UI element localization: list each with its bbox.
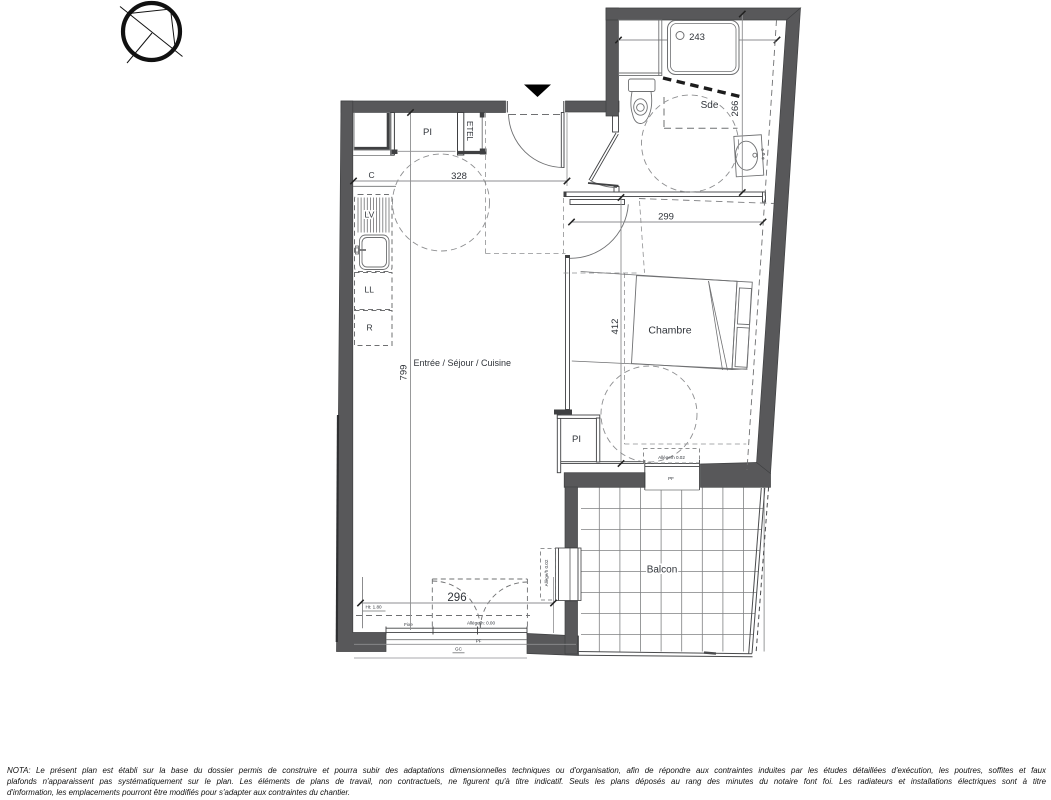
svg-text:C: C (369, 170, 375, 180)
svg-text:ETEL: ETEL (465, 121, 474, 142)
svg-text:328: 328 (451, 171, 467, 182)
svg-text:Entrée / Séjour / Cuisine: Entrée / Séjour / Cuisine (414, 358, 512, 368)
svg-text:Sde: Sde (701, 100, 719, 111)
svg-text:799: 799 (399, 365, 410, 381)
svg-text:PF: PF (668, 476, 674, 481)
svg-text:Ht: 1.80: Ht: 1.80 (366, 605, 383, 610)
svg-text:Chambre: Chambre (648, 325, 691, 337)
svg-text:PI: PI (572, 434, 581, 445)
svg-text:PI: PI (423, 127, 432, 138)
svg-text:Fixe: Fixe (404, 622, 413, 627)
svg-text:243: 243 (689, 32, 705, 43)
svg-text:412: 412 (610, 319, 621, 335)
svg-text:Allège/h: 0.00: Allège/h: 0.00 (467, 621, 496, 626)
svg-text:LL: LL (365, 285, 375, 295)
svg-text:266: 266 (730, 101, 741, 117)
svg-text:GC: GC (455, 647, 463, 652)
svg-text:296: 296 (447, 592, 466, 604)
svg-text:LV: LV (365, 210, 375, 220)
svg-text:PF: PF (476, 639, 482, 644)
svg-text:Allège/h 0.02: Allège/h 0.02 (658, 455, 685, 460)
svg-text:R: R (367, 323, 373, 333)
svg-text:Balcon: Balcon (647, 565, 678, 576)
svg-text:299: 299 (658, 212, 674, 223)
svg-text:Allège/h 0.02: Allège/h 0.02 (544, 559, 549, 586)
